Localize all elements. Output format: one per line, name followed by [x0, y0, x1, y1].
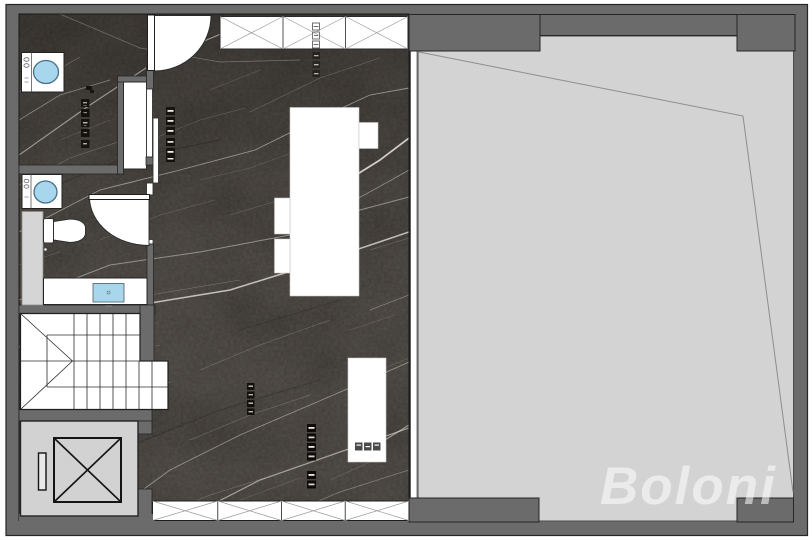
- svg-text:Boloni: Boloni: [600, 457, 777, 516]
